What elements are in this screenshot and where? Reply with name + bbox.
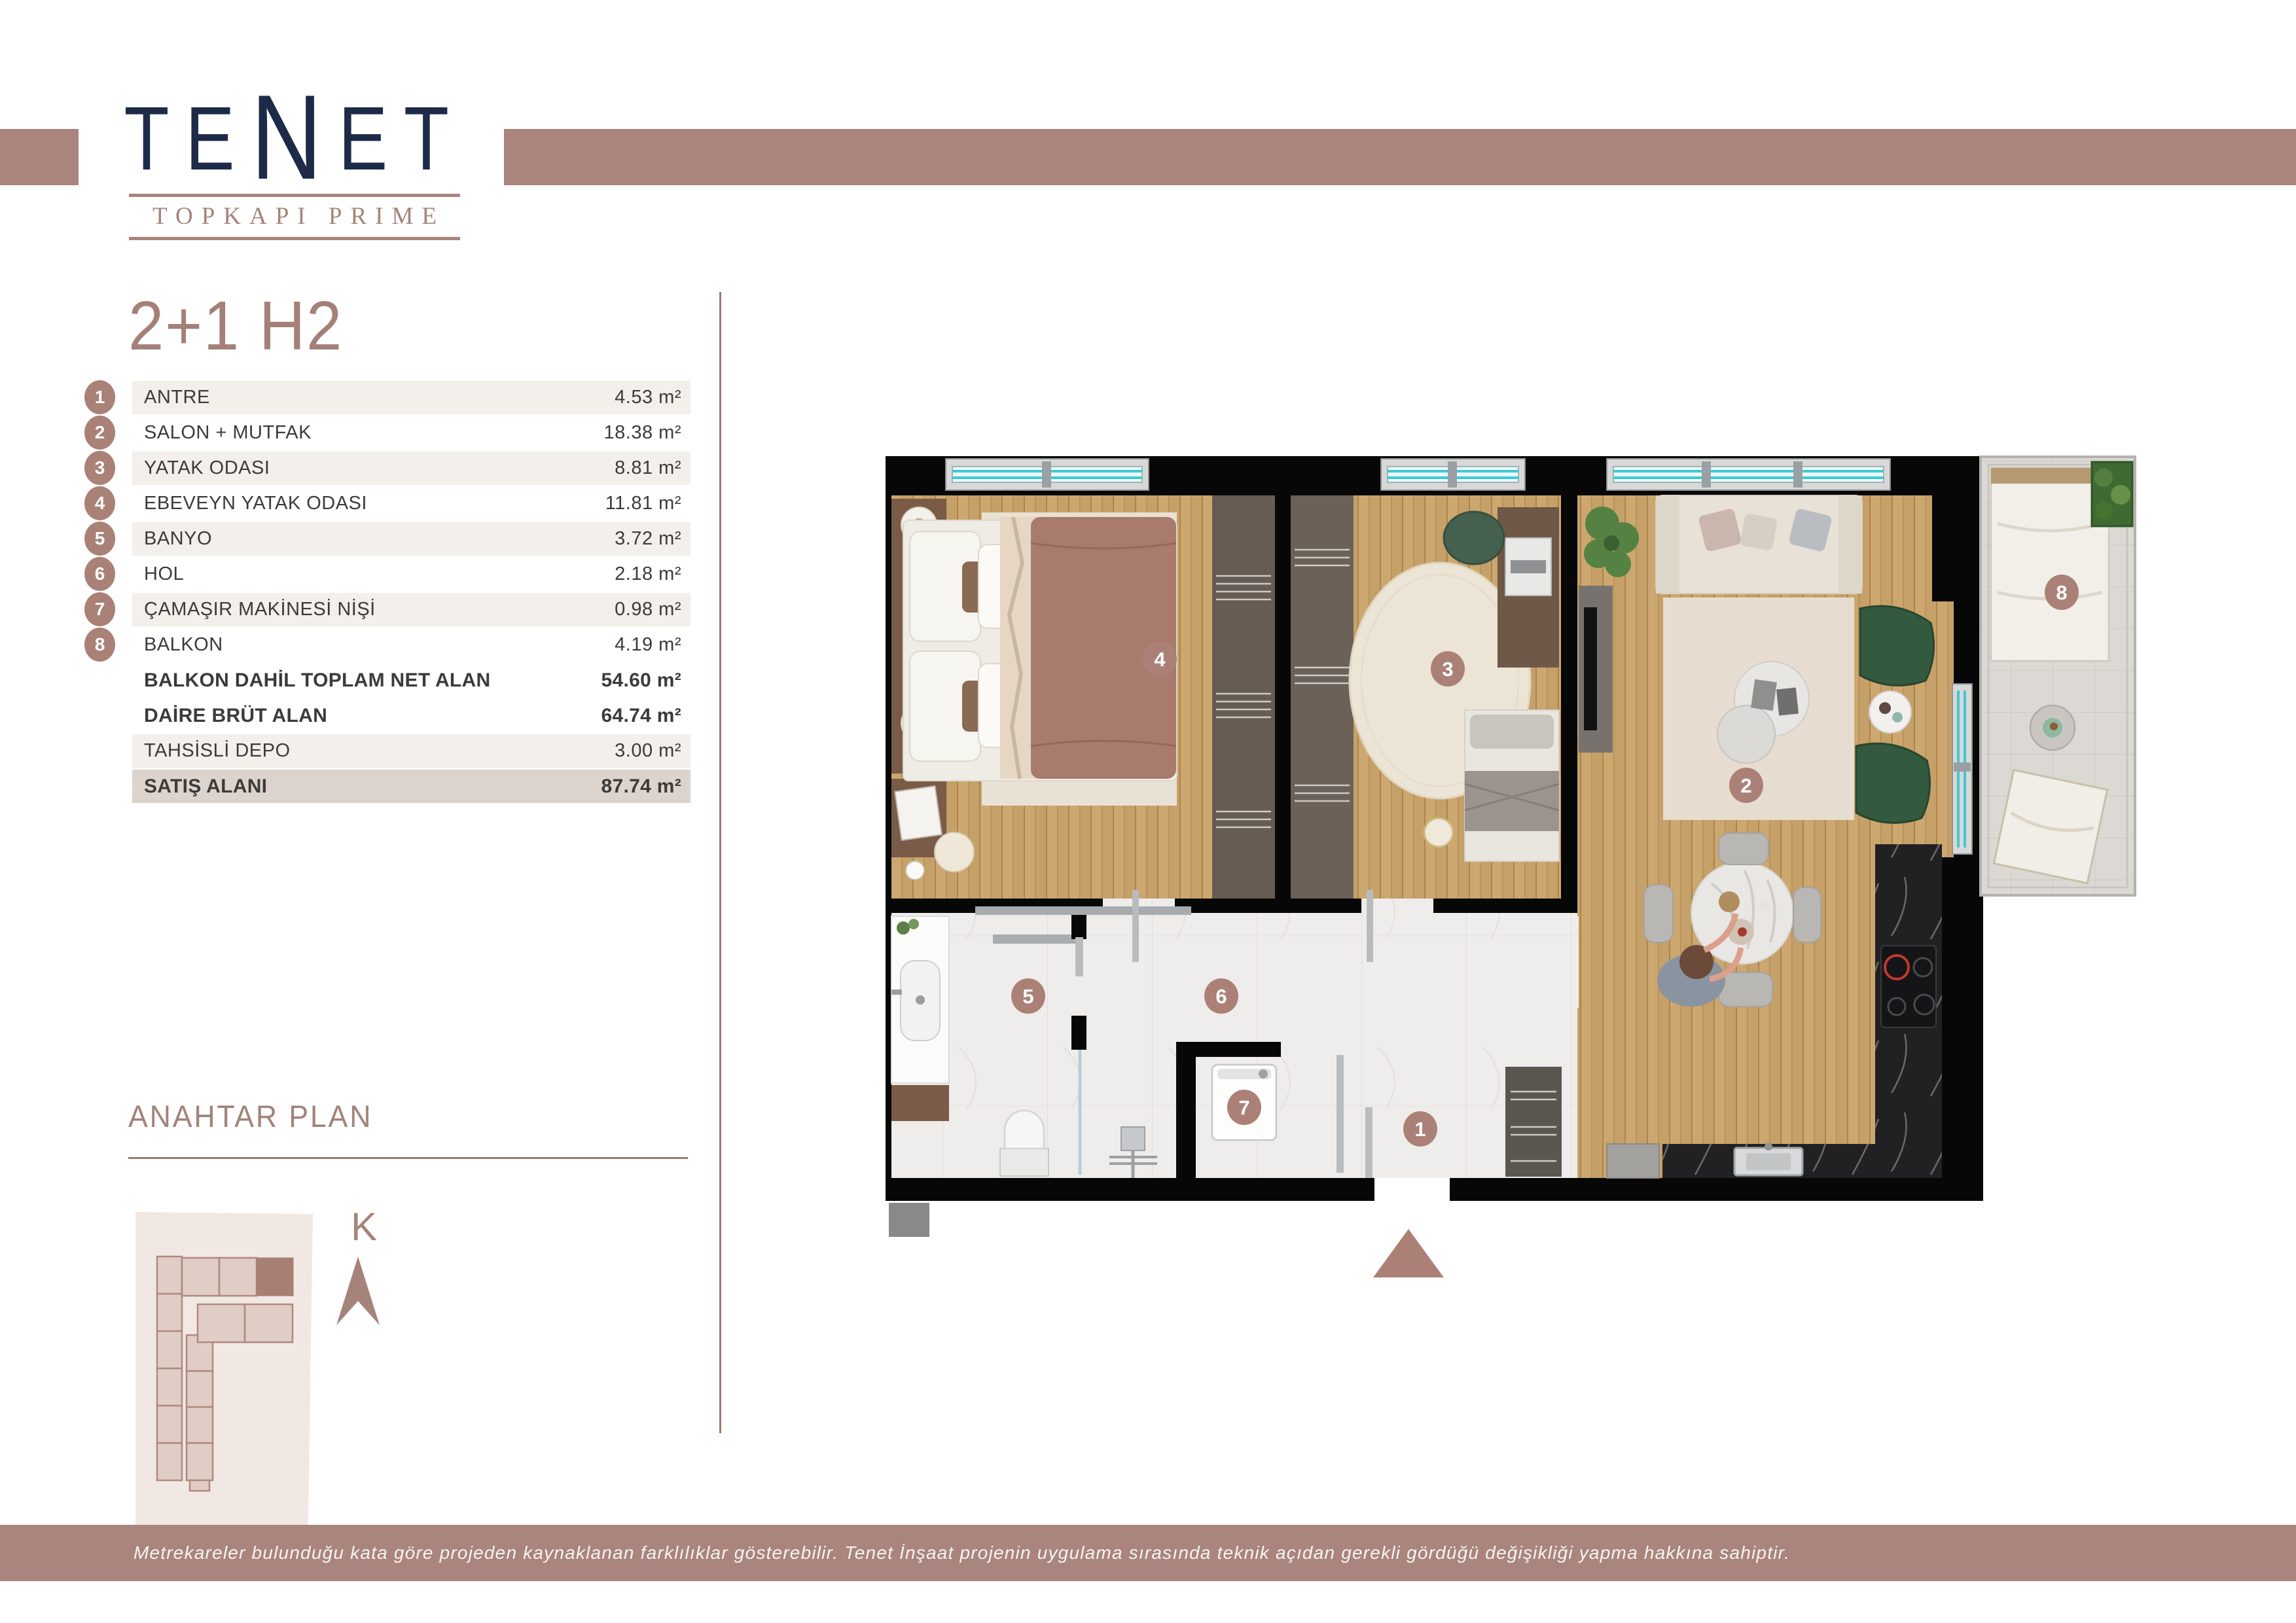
utility-shaft [889,1203,929,1237]
row-value: 8.81 m² [615,457,681,479]
logo-letter: E [185,94,251,184]
room-badge-8: 8 [2045,575,2079,610]
row-number-badge: 3 [84,451,115,485]
row-label: BALKON DAHİL TOPLAM NET ALAN [144,669,491,692]
table-row: 4 EBEVEYN YATAK ODASI11.81 m² [84,487,691,520]
row-value: 87.74 m² [601,776,681,798]
floor-plan: 1 2 3 4 5 6 7 8 [884,455,2144,1286]
row-number-badge: 2 [84,416,115,450]
row-value: 0.98 m² [615,599,681,620]
north-arrow-icon [336,1257,380,1325]
hall-threshold [975,906,1191,915]
table-row-gross: DAİRE BRÜT ALAN64.74 m² [84,699,691,732]
table-row: 8 BALKON4.19 m² [84,628,691,662]
logo-wordmark: T E N E T [152,84,437,194]
svg-text:3: 3 [1442,658,1453,681]
row-label: BANYO [144,528,212,550]
row-label: ANTRE [144,387,210,408]
balcony [1981,457,2135,895]
door-leaf-bedroom [1367,890,1373,962]
vertical-divider [719,292,721,1433]
table-row: 1 ANTRE4.53 m² [84,381,691,414]
row-value: 64.74 m² [601,705,681,727]
svg-text:7: 7 [1238,1096,1249,1119]
table-row-depot: TAHSİSLİ DEPO3.00 m² [84,734,691,768]
footer-disclaimer: Metrekareler bulunduğu kata göre projede… [134,1543,1790,1563]
room-badge-5: 5 [1011,978,1045,1014]
row-value: 3.00 m² [615,740,681,762]
room-badge-6: 6 [1204,978,1238,1014]
logo-rule-bottom [129,237,460,240]
svg-text:6: 6 [1215,985,1227,1008]
svg-text:2: 2 [1740,774,1751,797]
row-number-badge: 6 [84,557,115,591]
key-plan-heading: ANAHTAR PLAN [128,1098,372,1134]
row-number-badge: 4 [84,486,115,520]
tenet-logo: T E N E T TOPKAPI PRIME [121,84,468,240]
door-opening-living [1561,916,1579,1008]
table-row: 5 BANYO3.72 m² [84,522,691,556]
room-badge-3: 3 [1431,651,1465,687]
header-bar-right [504,129,2296,185]
row-value: 18.38 m² [604,422,681,444]
room-badge-4: 4 [1143,641,1177,677]
row-value: 3.72 m² [615,528,681,550]
row-value: 4.53 m² [615,387,681,408]
row-label: SALON + MUTFAK [144,422,312,444]
row-label: HOL [144,563,184,585]
room-badge-7: 7 [1227,1090,1261,1125]
area-table: 1 ANTRE4.53 m² 2 SALON + MUTFAK18.38 m² … [84,381,691,805]
row-label: TAHSİSLİ DEPO [144,740,291,762]
logo-letter: E [338,94,404,184]
entrance-arrow-icon [1373,1229,1444,1277]
row-value: 2.18 m² [615,563,681,585]
row-label: ÇAMAŞIR MAKİNESİ NİŞİ [144,599,376,620]
header-bar-left [0,129,79,185]
svg-text:5: 5 [1022,985,1033,1008]
row-label: YATAK ODASI [144,457,270,479]
svg-text:8: 8 [2056,581,2067,604]
key-plan-rule [128,1157,688,1159]
table-row: 2 SALON + MUTFAK18.38 m² [84,416,691,450]
row-value: 4.19 m² [615,634,681,656]
footer-bar: Metrekareler bulunduğu kata göre projede… [0,1525,2296,1581]
table-row: 7 ÇAMAŞIR MAKİNESİ NİŞİ0.98 m² [84,593,691,626]
svg-text:4: 4 [1154,648,1166,671]
room-badge-1: 1 [1403,1111,1437,1147]
logo-letter-n: N [251,77,338,197]
row-label: DAİRE BRÜT ALAN [144,705,327,727]
compass-k-label: K [351,1205,377,1249]
page-title: 2+1 H2 [128,287,343,366]
key-plan-highlighted-unit [257,1258,293,1296]
logo-letter: T [124,94,185,184]
logo-letter: T [404,94,465,184]
room-badge-2: 2 [1729,768,1763,803]
row-label: BALKON [144,634,223,656]
table-row: 3 YATAK ODASI8.81 m² [84,452,691,485]
row-label: SATIŞ ALANI [144,776,267,798]
svg-text:1: 1 [1414,1118,1426,1141]
row-number-badge: 7 [84,592,115,626]
row-label: EBEVEYN YATAK ODASI [144,493,367,514]
row-number-badge: 5 [84,522,115,556]
table-row-total-net: BALKON DAHİL TOPLAM NET ALAN54.60 m² [84,664,691,697]
row-number-badge: 8 [84,628,115,662]
entrance-opening [1374,1178,1450,1201]
row-value: 54.60 m² [601,669,681,692]
table-row-sales-area: SATIŞ ALANI87.74 m² [84,770,691,803]
row-value: 11.81 m² [605,493,681,514]
row-number-badge: 1 [84,380,115,414]
table-row: 6 HOL2.18 m² [84,558,691,591]
door-leaf-master [1132,890,1139,962]
